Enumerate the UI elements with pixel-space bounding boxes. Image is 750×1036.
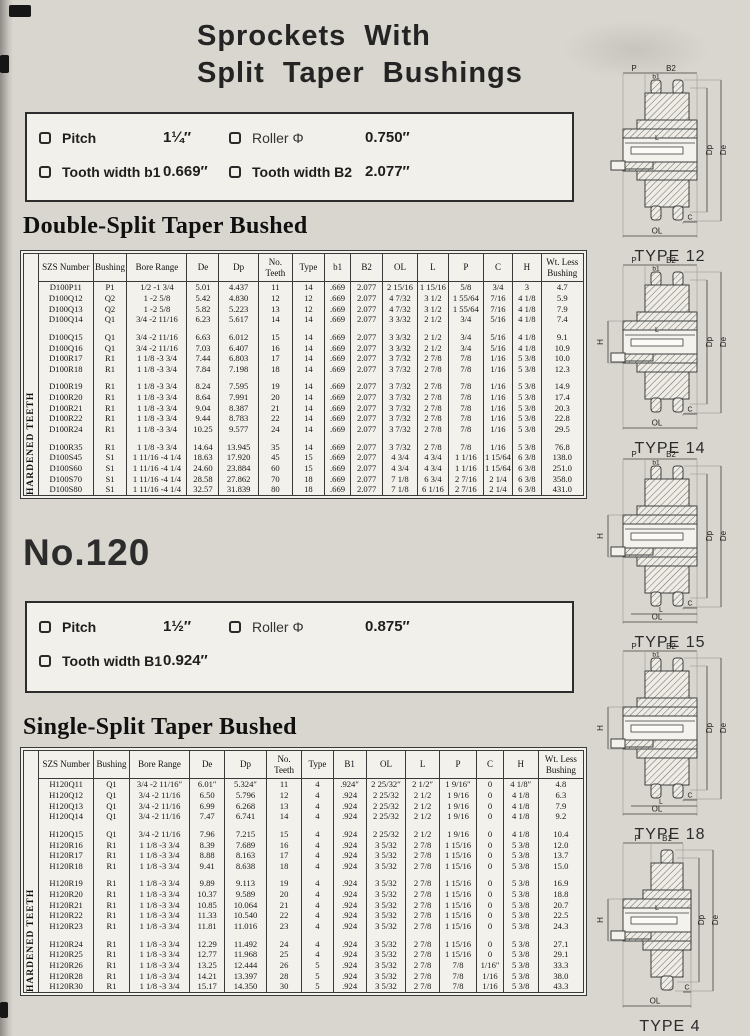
table-cell: 3 5/32	[366, 889, 406, 900]
table-row: H120R18R11 1/8 -3 3/49.418.638184.9243 5…	[39, 861, 584, 872]
table-cell: 4	[302, 921, 334, 932]
table-cell: 14	[292, 364, 324, 375]
table-cell: .669	[324, 364, 350, 375]
table-cell: 18.8	[538, 889, 583, 900]
svg-text:De: De	[719, 722, 728, 733]
table-cell: 1 1/8 -3 3/4	[129, 981, 190, 992]
table-cell: S1	[93, 463, 127, 474]
table-cell: 2 1/2	[417, 325, 448, 343]
table-cell: 10.85	[190, 900, 225, 911]
table-cell: 3/4	[483, 282, 513, 293]
table-cell: 9.44	[187, 413, 219, 424]
table-row: H120Q14Q13/4 -2 11/167.476.741144.9242 2…	[39, 811, 584, 822]
table-cell: D100R20	[39, 392, 94, 403]
table-cell: 15.17	[190, 981, 225, 992]
table-cell: 2.077	[351, 293, 383, 304]
table-cell: 0	[477, 932, 503, 950]
column-header: Bore Range	[127, 254, 187, 282]
table-cell: 6 3/8	[513, 452, 541, 463]
table-cell: 4 1/8	[513, 343, 541, 354]
table-cell: 7.595	[219, 374, 258, 392]
sprocket-cross-section-drawing: P B2 b1 L Dp De C OL	[595, 64, 745, 242]
spec-box-100: Pitch 1¼″ Roller Φ 0.750″ Tooth width b1…	[25, 112, 574, 202]
table-cell: 1 1/8 -3 3/4	[127, 424, 187, 435]
table-cell: .924	[333, 840, 366, 851]
svg-text:P: P	[631, 64, 636, 73]
table-cell: 5 3/8	[513, 424, 541, 435]
table-cell: 1 9/16	[439, 822, 477, 840]
table-cell: 1 9/16	[439, 811, 477, 822]
table-cell: 7 1/8	[383, 474, 418, 485]
svg-text:De: De	[719, 336, 728, 347]
table-cell: 2.077	[351, 282, 383, 293]
svg-text:Dp: Dp	[705, 530, 714, 541]
table-cell: 1 11/16 -4 1/4	[127, 474, 187, 485]
table-cell: R1	[94, 871, 129, 889]
table-cell: 5 3/8	[503, 861, 538, 872]
table-cell: 0	[477, 949, 503, 960]
table-cell: 5 3/8	[503, 900, 538, 911]
table-cell: 9.113	[225, 871, 267, 889]
side-label-strip: HARDENED TEETH	[23, 253, 38, 496]
table-cell: 1 1/8 -3 3/4	[129, 850, 190, 861]
table-cell: 9.41	[190, 861, 225, 872]
table-cell: 35	[258, 435, 292, 453]
table-cell: 18	[258, 364, 292, 375]
table-cell: 2 7/8	[406, 900, 439, 911]
column-header: OL	[366, 751, 406, 779]
table-cell: 5 3/8	[503, 889, 538, 900]
table-cell: 4	[302, 932, 334, 950]
table-cell: 8.783	[219, 413, 258, 424]
table-cell: H120R20	[39, 889, 94, 900]
table-cell: R1	[93, 374, 127, 392]
table-cell: 10.4	[538, 822, 583, 840]
table-cell: 3 3/32	[383, 314, 418, 325]
table-cell: 7/8	[439, 960, 477, 971]
table-cell: 1 1/8 -3 3/4	[129, 921, 190, 932]
table-cell: 1 55/64	[449, 293, 484, 304]
table-cell: 80	[258, 484, 292, 495]
table-cell: R1	[94, 981, 129, 992]
table-cell: 23	[267, 921, 302, 932]
table-cell: 1/2 -1 3/4	[127, 282, 187, 293]
table-cell: Q1	[94, 801, 129, 812]
table-cell: 14	[292, 435, 324, 453]
table-cell: 3/4 -2 11/16	[127, 314, 187, 325]
scan-artifact	[0, 55, 9, 73]
table-row: D100S60S11 11/16 -4 1/424.6023.8846015.6…	[39, 463, 584, 474]
table-cell: 13.7	[538, 850, 583, 861]
table-cell: 3 7/32	[383, 435, 418, 453]
table-cell: .924	[333, 981, 366, 992]
table-cell: 26	[267, 960, 302, 971]
table-row: D100Q14Q13/4 -2 11/166.235.6171414.6692.…	[39, 314, 584, 325]
table-cell: 20	[267, 889, 302, 900]
table-cell: S1	[93, 474, 127, 485]
table-cell: 3/4 -2 11/16	[127, 343, 187, 354]
table-cell: 1 9/16″	[439, 779, 477, 790]
table-cell: 2 7/8	[406, 889, 439, 900]
table-cell: 18	[267, 861, 302, 872]
table-cell: R1	[94, 900, 129, 911]
table-cell: 3/4 -2 11/16	[129, 811, 190, 822]
table-row: D100Q16Q13/4 -2 11/167.036.4071614.6692.…	[39, 343, 584, 354]
table-cell: 1 15/64	[483, 463, 513, 474]
spec-label: Tooth width b1	[62, 164, 163, 180]
spec-value: 0.750″	[365, 129, 410, 146]
table-cell: R1	[94, 932, 129, 950]
table-cell: 10.064	[225, 900, 267, 911]
table-cell: 1 1/8 -3 3/4	[129, 900, 190, 911]
table-cell: 6.268	[225, 801, 267, 812]
table-cell: 0	[477, 910, 503, 921]
table-cell: 30	[267, 981, 302, 992]
table-cell: 13.397	[225, 971, 267, 982]
svg-text:L: L	[655, 327, 659, 334]
table-cell: 1 15/16	[417, 282, 448, 293]
table-cell: 24	[258, 424, 292, 435]
table-cell: H120R25	[39, 949, 94, 960]
table-row: D100R19R11 1/8 -3 3/48.247.5951914.6692.…	[39, 374, 584, 392]
table-cell: 3 5/32	[366, 949, 406, 960]
table-cell: R1	[94, 840, 129, 851]
table-cell: .669	[324, 282, 350, 293]
option-square-icon	[229, 166, 241, 178]
table-cell: 4	[302, 822, 334, 840]
table-cell: 43.3	[538, 981, 583, 992]
table-cell: 1 15/16	[439, 840, 477, 851]
table-cell: R1	[93, 435, 127, 453]
table-cell: 3 5/32	[366, 910, 406, 921]
table-cell: 4	[302, 811, 334, 822]
table-cell: 4 1/8	[503, 801, 538, 812]
table-cell: 33.3	[538, 960, 583, 971]
table-cell: 4 1/8	[513, 304, 541, 315]
spec-tooth-width-b2: Tooth width B2 2.077″	[229, 163, 410, 180]
table-cell: 2 1/4	[483, 484, 513, 495]
table-cell: 2.077	[351, 343, 383, 354]
table-cell: 3 7/32	[383, 413, 418, 424]
table-cell: D100P11	[39, 282, 94, 293]
table-cell: 22.5	[538, 910, 583, 921]
table-cell: D100R18	[39, 364, 94, 375]
table-row: H120R30R11 1/8 -3 3/415.1714.350305.9243…	[39, 981, 584, 992]
table-cell: 4 1/8	[503, 822, 538, 840]
table-cell: 4	[302, 850, 334, 861]
table-cell: 7/16	[483, 304, 513, 315]
table-cell: R1	[94, 949, 129, 960]
table-cell: 2 25/32	[366, 822, 406, 840]
table-cell: 4	[302, 900, 334, 911]
table-cell: 11.492	[225, 932, 267, 950]
table-cell: 4 7/32	[383, 293, 418, 304]
table-cell: 2 7/8	[406, 910, 439, 921]
column-header: C	[477, 751, 503, 779]
svg-text:Dp: Dp	[705, 336, 714, 347]
table-cell: 11.33	[190, 910, 225, 921]
table-cell: 6.012	[219, 325, 258, 343]
table-row: H120Q13Q13/4 -2 11/166.996.268134.9242 2…	[39, 801, 584, 812]
table-row: D100R20R11 1/8 -3 3/48.647.9912014.6692.…	[39, 392, 584, 403]
table-cell: 12	[267, 790, 302, 801]
table-cell: 0	[477, 840, 503, 851]
table-cell: .924	[333, 871, 366, 889]
table-cell: .669	[324, 374, 350, 392]
table-cell: .924	[333, 801, 366, 812]
table-cell: 2 25/32	[366, 811, 406, 822]
table-cell: 3/4 -2 11/16	[127, 325, 187, 343]
table-cell: 5 3/8	[503, 932, 538, 950]
table-cell: 32.57	[187, 484, 219, 495]
table-cell: 6.803	[219, 353, 258, 364]
page-title-line2: Split Taper Bushings	[197, 55, 523, 92]
table-cell: 27.1	[538, 932, 583, 950]
column-header: Bushing	[94, 751, 129, 779]
table-cell: 2 25/32	[366, 801, 406, 812]
table-cell: D100Q13	[39, 304, 94, 315]
table-cell: 7/8	[449, 435, 484, 453]
table-cell: 5.223	[219, 304, 258, 315]
table-cell: 14.350	[225, 981, 267, 992]
table-row: D100S80S11 11/16 -4 1/432.5731.8398018.6…	[39, 484, 584, 495]
table-cell: 17.920	[219, 452, 258, 463]
svg-text:b1: b1	[652, 460, 660, 467]
table-cell: D100Q15	[39, 325, 94, 343]
table-cell: .924	[333, 790, 366, 801]
spec-box-120: Pitch 1½″ Roller Φ 0.875″ Tooth width B1…	[25, 601, 574, 693]
table-cell: 12.3	[541, 364, 583, 375]
table-cell: 3 5/32	[366, 971, 406, 982]
option-square-icon	[39, 621, 51, 633]
table-cell: 2 7/8	[417, 403, 448, 414]
table-cell: .669	[324, 484, 350, 495]
table-cell: 18	[292, 474, 324, 485]
svg-text:C: C	[687, 215, 692, 222]
table-cell: 1 9/16	[439, 790, 477, 801]
svg-text:C: C	[687, 793, 692, 800]
table-cell: 4	[302, 949, 334, 960]
table-cell: 2.077	[351, 435, 383, 453]
svg-text:Dp: Dp	[697, 914, 706, 925]
table-cell: 7/8	[449, 353, 484, 364]
table-cell: H120Q13	[39, 801, 94, 812]
table-cell: 14	[258, 314, 292, 325]
table-cell: 5/16	[483, 314, 513, 325]
svg-text:P: P	[631, 450, 636, 459]
table-cell: 5.617	[219, 314, 258, 325]
table-cell: 1 1/8 -3 3/4	[127, 374, 187, 392]
table-cell: 1/16	[483, 392, 513, 403]
table-cell: 7.47	[190, 811, 225, 822]
table-cell: 5 3/8	[503, 960, 538, 971]
table-cell: 4.437	[219, 282, 258, 293]
table-cell: 19	[267, 871, 302, 889]
table-cell: 0	[477, 850, 503, 861]
table-cell: H120Q15	[39, 822, 94, 840]
table-cell: 1 15/16	[439, 889, 477, 900]
svg-text:b1: b1	[652, 74, 660, 81]
spec-roller-diameter: Roller Φ 0.750″	[229, 129, 410, 146]
table-cell: 22	[258, 413, 292, 424]
table-cell: D100R19	[39, 374, 94, 392]
single-split-table: HARDENED TEETH SZS NumberBushingBore Ran…	[20, 747, 587, 996]
option-square-icon	[39, 166, 51, 178]
table-cell: 8.39	[190, 840, 225, 851]
table-cell: 20.3	[541, 403, 583, 414]
table-row: H120Q12Q13/4 -2 11/166.505.796124.9242 2…	[39, 790, 584, 801]
spec-label: Pitch	[62, 130, 163, 146]
table-cell: 2.077	[351, 304, 383, 315]
table-cell: H120R26	[39, 960, 94, 971]
table-cell: 1 1/8 -3 3/4	[129, 960, 190, 971]
table-row: D100Q12Q21 -2 5/85.424.8301212.6692.0774…	[39, 293, 584, 304]
table-cell: 11	[258, 282, 292, 293]
svg-text:H: H	[596, 917, 605, 923]
table-cell: 24	[267, 932, 302, 950]
column-header: H	[503, 751, 538, 779]
table-cell: 16.9	[538, 871, 583, 889]
table-cell: R1	[93, 392, 127, 403]
svg-text:OL: OL	[652, 227, 663, 236]
table-row: D100R35R11 1/8 -3 3/414.6413.9453514.669…	[39, 435, 584, 453]
table-cell: 2 7/8	[406, 932, 439, 950]
table-cell: 2.077	[351, 484, 383, 495]
table-cell: H120R24	[39, 932, 94, 950]
table-cell: 7/16	[483, 293, 513, 304]
table-cell: .924	[333, 910, 366, 921]
table-cell: 3 7/32	[383, 353, 418, 364]
table-cell: 1 -2 5/8	[127, 304, 187, 315]
table-cell: 8.88	[190, 850, 225, 861]
table-cell: 18.63	[187, 452, 219, 463]
table-cell: 7/8	[439, 981, 477, 992]
table-cell: 8.638	[225, 861, 267, 872]
column-header: P	[439, 751, 477, 779]
table-cell: 1 1/16	[449, 452, 484, 463]
table-cell: R1	[94, 889, 129, 900]
table-cell: .669	[324, 343, 350, 354]
table-row: D100Q15Q13/4 -2 11/166.636.0121514.6692.…	[39, 325, 584, 343]
table-row: H120R17R11 1/8 -3 3/48.888.163174.9243 5…	[39, 850, 584, 861]
table-cell: 4 1/8	[513, 325, 541, 343]
table-cell: 4	[302, 910, 334, 921]
table-cell: 2.077	[351, 463, 383, 474]
svg-text:B2: B2	[666, 64, 676, 73]
table-row: H120R20R11 1/8 -3 3/410.379.589204.9243 …	[39, 889, 584, 900]
table-cell: 5.9	[541, 293, 583, 304]
table-cell: 7/8	[449, 392, 484, 403]
table-cell: 2 1/2	[406, 822, 439, 840]
table-cell: 17	[258, 353, 292, 364]
table-cell: .669	[324, 435, 350, 453]
table-cell: 4	[302, 790, 334, 801]
table-cell: 4 1/8	[513, 314, 541, 325]
table-cell: 3 3/32	[383, 325, 418, 343]
table-cell: 3/4 -2 11/16	[129, 801, 190, 812]
table-cell: R1	[94, 910, 129, 921]
table-cell: 6 3/4	[417, 474, 448, 485]
table-cell: 2 7/8	[417, 353, 448, 364]
table-cell: D100Q12	[39, 293, 94, 304]
table-cell: Q1	[93, 343, 127, 354]
table-cell: D100S45	[39, 452, 94, 463]
svg-text:P: P	[634, 834, 639, 843]
table-cell: .669	[324, 474, 350, 485]
table-cell: .669	[324, 293, 350, 304]
table-cell: 15	[292, 452, 324, 463]
table-body: D100P11P11/2 -1 3/45.014.4371114.6692.07…	[39, 282, 584, 496]
table-cell: 5 3/8	[503, 971, 538, 982]
table-cell: 4	[302, 871, 334, 889]
table-cell: 4 3/4	[417, 463, 448, 474]
table-cell: 2 7/8	[406, 861, 439, 872]
header-row: SZS NumberBushingBore RangeDeDpNo. Teeth…	[39, 751, 584, 779]
table-cell: 7/8	[449, 413, 484, 424]
table-cell: 11.016	[225, 921, 267, 932]
column-header: B1	[333, 751, 366, 779]
spec-tooth-width-b1: Tooth width B1 0.924″	[39, 652, 229, 669]
table-cell: 15	[258, 325, 292, 343]
table-cell: 2 7/8	[417, 392, 448, 403]
table-row: H120R25R11 1/8 -3 3/412.7711.968254.9243…	[39, 949, 584, 960]
table-cell: 1 11/16 -4 1/4	[127, 463, 187, 474]
sprocket-cross-section-drawing: P B2 b1 H L Dp De C OL	[595, 642, 745, 820]
table-cell: H120R17	[39, 850, 94, 861]
table-cell: 12.29	[190, 932, 225, 950]
table-cell: 3/4	[449, 314, 484, 325]
table-row: D100R21R11 1/8 -3 3/49.048.3872114.6692.…	[39, 403, 584, 414]
table-cell: 2 7/8	[406, 871, 439, 889]
column-header: De	[190, 751, 225, 779]
table-cell: 14	[292, 392, 324, 403]
table-cell: 9.589	[225, 889, 267, 900]
table-cell: 6.23	[187, 314, 219, 325]
table-cell: 2 7/8	[406, 960, 439, 971]
table-cell: 3/4 -2 11/16	[129, 790, 190, 801]
column-header: H	[513, 254, 541, 282]
diagram-type-15: P B2 b1 H L Dp De C OL TYPE 15	[594, 450, 746, 652]
table-cell: 4.830	[219, 293, 258, 304]
table-cell: 7.44	[187, 353, 219, 364]
table-cell: 70	[258, 474, 292, 485]
table-cell: H120R23	[39, 921, 94, 932]
table-cell: 1 1/8 -3 3/4	[129, 971, 190, 982]
table-cell: 24.60	[187, 463, 219, 474]
table-cell: 3/4	[449, 343, 484, 354]
table-cell: Q2	[93, 293, 127, 304]
table-cell: R1	[94, 861, 129, 872]
table-cell: 2 1/2	[406, 801, 439, 812]
table-cell: 4 1/8″	[503, 779, 538, 790]
table-cell: D100R21	[39, 403, 94, 414]
table-cell: 1 1/8 -3 3/4	[127, 403, 187, 414]
table-cell: R1	[93, 364, 127, 375]
table-row: D100Q13Q21 -2 5/85.825.2231312.6692.0774…	[39, 304, 584, 315]
table-cell: .924	[333, 811, 366, 822]
table-cell: 5 3/8	[503, 981, 538, 992]
table-cell: 1 1/8 -3 3/4	[129, 861, 190, 872]
table-cell: .669	[324, 392, 350, 403]
column-header: Wt. Less Bushing	[541, 254, 583, 282]
svg-text:OL: OL	[650, 997, 661, 1006]
diagram-type-14: P B2 b1 H L Dp De C OL TYPE 14	[594, 256, 746, 458]
table-cell: 6 3/8	[513, 474, 541, 485]
table-cell: D100S60	[39, 463, 94, 474]
table-cell: 1/16″	[477, 960, 503, 971]
table-cell: 0	[477, 861, 503, 872]
table-cell: R1	[93, 424, 127, 435]
